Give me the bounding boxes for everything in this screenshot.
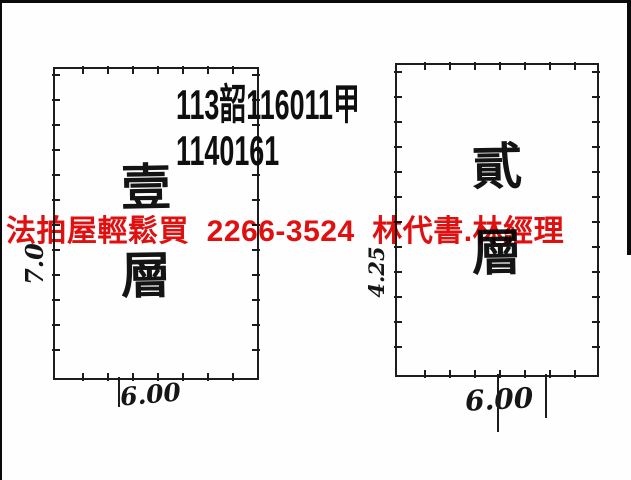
scan-edge-right: [627, 0, 631, 255]
scan-edge-left: [0, 0, 2, 480]
dimension-west-second-floor: 4.25: [344, 244, 408, 300]
extension-line: [497, 374, 499, 432]
dimension-south-second-floor: 6.00: [464, 381, 534, 418]
floor-label-first-char2: 層: [116, 250, 177, 301]
scanned-survey-document: 壹 層 貳 層 113韶116011甲 1140161 7.0 4.25 6.0…: [0, 0, 631, 480]
document-number-line1: 113韶116011甲: [176, 82, 360, 128]
tick-marks-north: [401, 62, 593, 70]
document-number-line2: 1140161: [176, 128, 360, 174]
tick-marks-east: [592, 69, 600, 371]
scan-edge-top: [0, 0, 631, 3]
document-number: 113韶116011甲 1140161: [176, 82, 360, 174]
tick-marks-north: [59, 66, 253, 74]
dimension-south-first-floor: 6.00: [119, 377, 182, 411]
agent-watermark-text: 法拍屋輕鬆買 2266-3524 林代書.林經理: [6, 213, 564, 251]
floor-label-first-char1: 壹: [116, 162, 177, 213]
extension-line: [545, 374, 547, 418]
extension-line: [118, 377, 120, 407]
floor-label-second-char1: 貳: [467, 141, 528, 192]
